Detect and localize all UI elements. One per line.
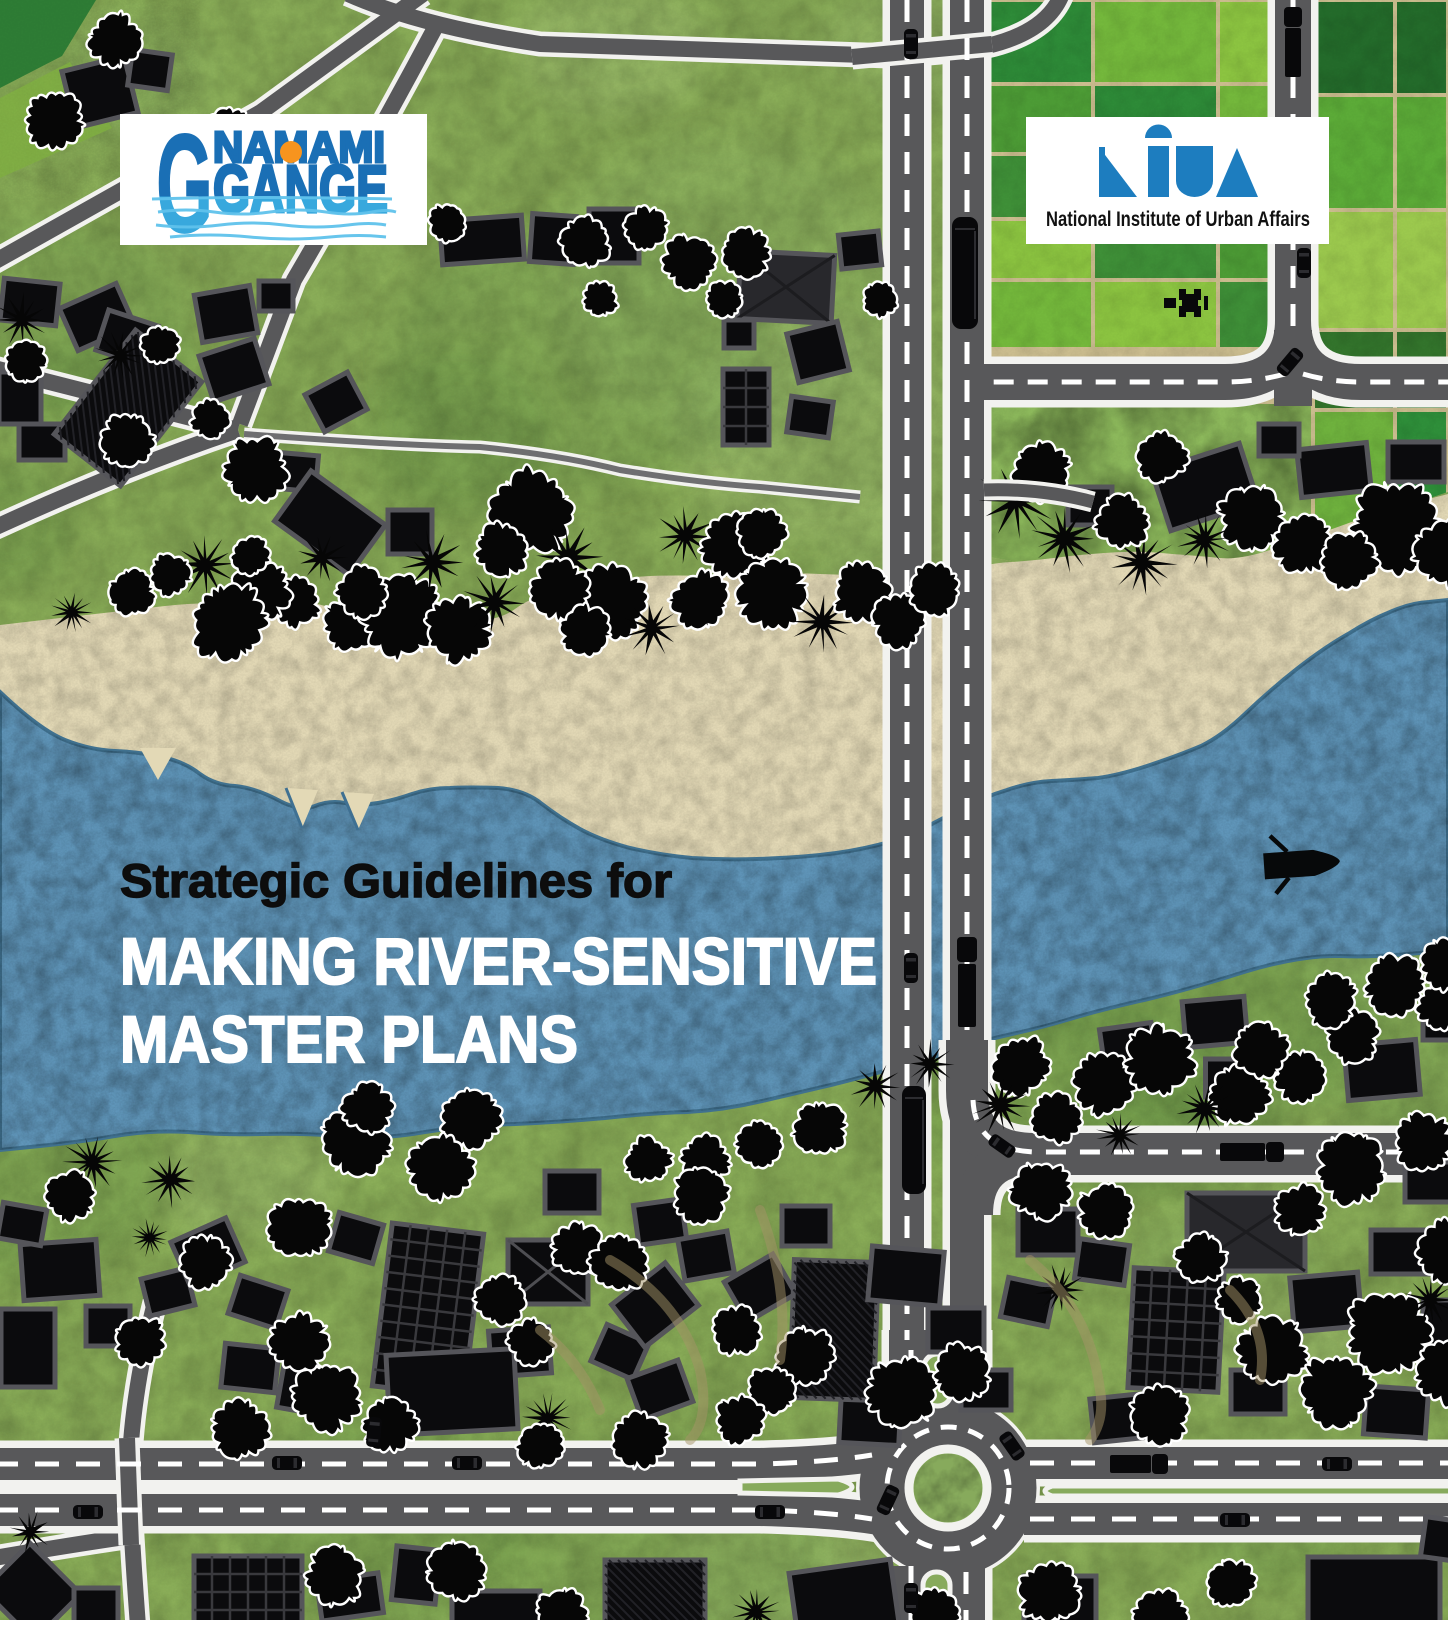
svg-text:National Institute of Urban Af: National Institute of Urban Affairs — [1046, 208, 1310, 231]
svg-text:Strategic Guidelines for: Strategic Guidelines for — [120, 854, 672, 907]
svg-text:MAKING RIVER-SENSITIVE: MAKING RIVER-SENSITIVE — [120, 924, 877, 998]
svg-text:MASTER PLANS: MASTER PLANS — [120, 1002, 578, 1076]
